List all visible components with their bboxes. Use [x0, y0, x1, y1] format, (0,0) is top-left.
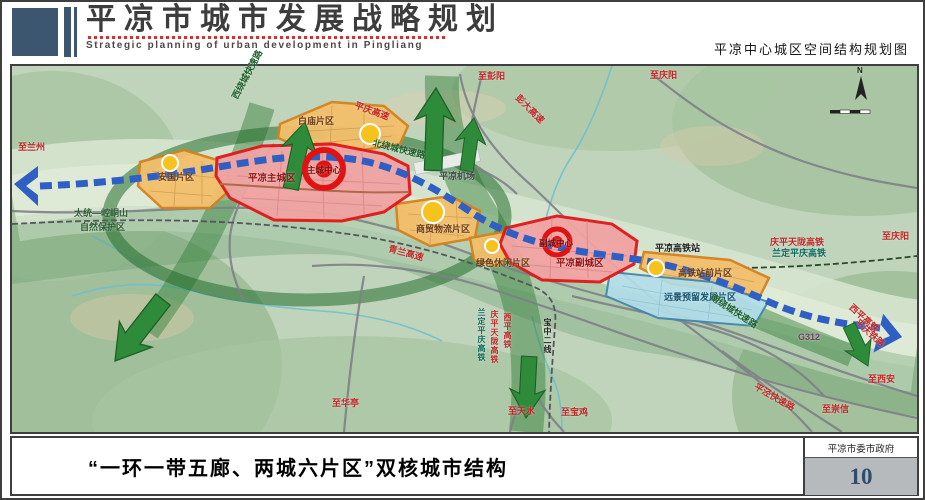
footer: “一环一带五廊、两城六片区”双核城市结构 平凉市委市政府 10	[10, 436, 919, 496]
brand-bar-thick	[64, 7, 71, 57]
header: 平凉市城市发展战略规划 Strategic planning of urban …	[2, 2, 923, 64]
farm-patch-2	[660, 126, 764, 166]
brand-bar-thin	[74, 7, 77, 57]
main-center-dot	[316, 161, 333, 178]
scale-bar	[830, 110, 870, 114]
node-hsr	[648, 260, 664, 276]
map-panel: 至兰州 太统—崆峒山 自然保护区 安国片区 西绕城快速路 白庙片区 平庆高速 北…	[10, 64, 919, 434]
red-squiggle-underline	[88, 36, 448, 39]
node-leisure	[485, 239, 499, 253]
page-subtitle: Strategic planning of urban development …	[86, 40, 504, 51]
page-number: 10	[805, 458, 917, 495]
node-baimiao	[360, 124, 380, 144]
planning-map-graphics	[12, 66, 917, 432]
sub-center-dot	[551, 236, 563, 248]
structure-caption: “一环一带五廊、两城六片区”双核城市结构	[88, 452, 508, 481]
node-anguo	[162, 155, 178, 171]
org-name: 平凉市委市政府	[805, 438, 917, 458]
title-block: 平凉市城市发展战略规划 Strategic planning of urban …	[86, 4, 504, 51]
footer-info-box: 平凉市委市政府 10	[803, 438, 917, 494]
map-sheet-title: 平凉中心城区空间结构规划图	[714, 39, 909, 58]
brand-square	[12, 8, 58, 56]
node-logistics	[422, 201, 444, 223]
planning-document-page: 平凉市城市发展战略规划 Strategic planning of urban …	[0, 0, 925, 500]
page-title: 平凉市城市发展战略规划	[86, 4, 504, 36]
